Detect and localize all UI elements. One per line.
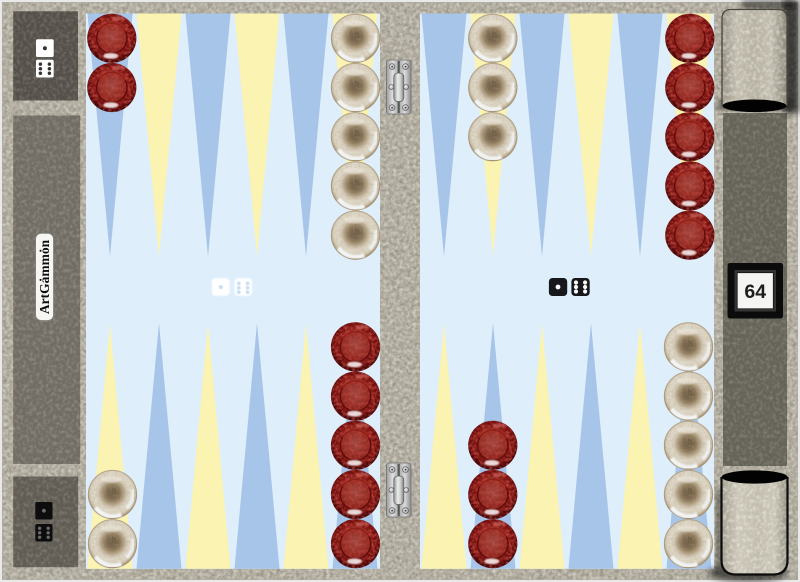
svg-text:ArtGȧmmȯn: ArtGȧmmȯn <box>37 239 52 314</box>
svg-text:64: 64 <box>744 281 766 303</box>
